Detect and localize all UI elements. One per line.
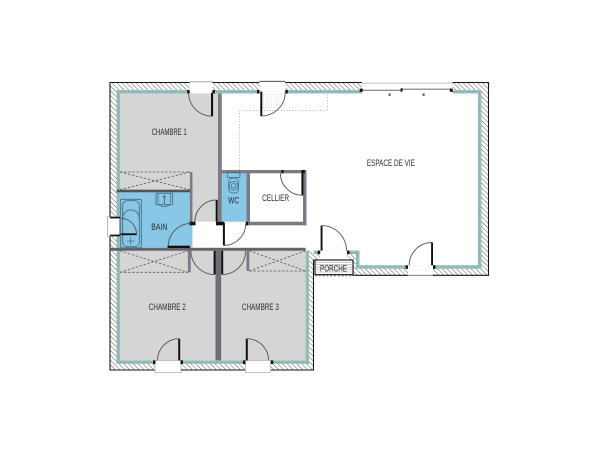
svg-text:CHAMBRE 2: CHAMBRE 2	[149, 302, 186, 312]
svg-text:BAIN: BAIN	[151, 222, 167, 232]
svg-text:ESPACE DE VIE: ESPACE DE VIE	[367, 158, 415, 168]
svg-text:CHAMBRE 3: CHAMBRE 3	[242, 302, 279, 312]
svg-text:PORCHE: PORCHE	[320, 263, 347, 274]
svg-text:CELLIER: CELLIER	[262, 193, 289, 203]
svg-text:WC: WC	[228, 196, 239, 206]
svg-text:CHAMBRE 1: CHAMBRE 1	[152, 127, 187, 137]
